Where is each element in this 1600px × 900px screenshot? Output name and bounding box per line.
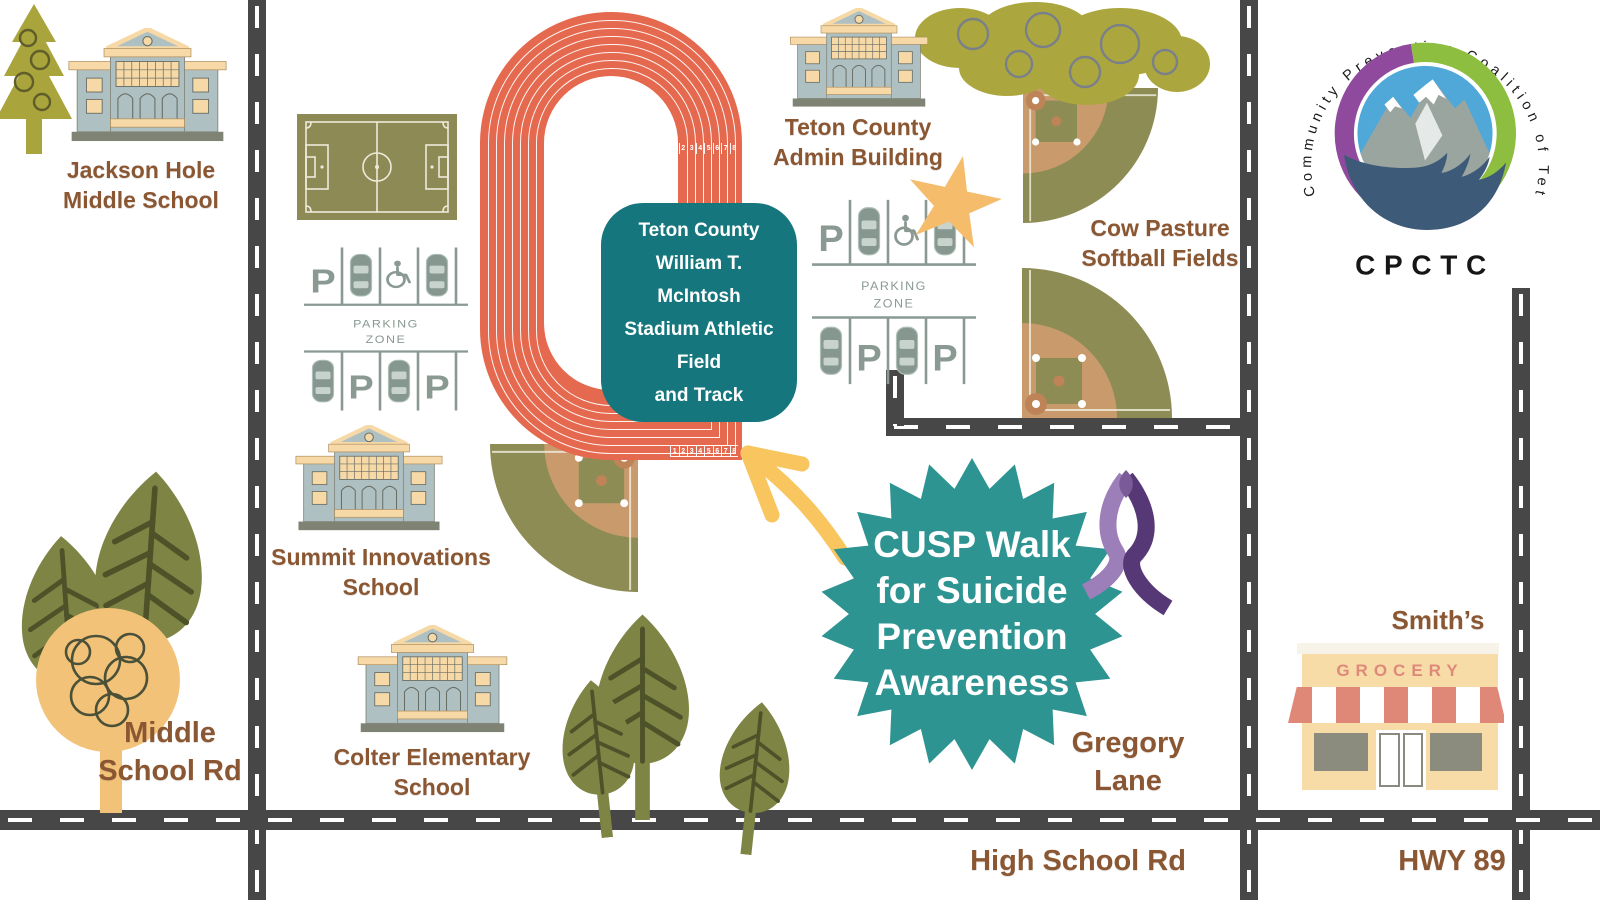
jackson-hole-middle-school-building <box>55 28 240 144</box>
car-icon <box>389 360 410 402</box>
awareness-ribbon-icon <box>1068 468 1193 618</box>
svg-text:P: P <box>424 369 449 406</box>
road-gregory-lane <box>1240 0 1258 900</box>
svg-text:P: P <box>310 263 335 300</box>
colter-elementary-label: Colter ElementarySchool <box>334 742 531 802</box>
road-high-school-rd <box>0 810 1600 830</box>
car-icon <box>897 327 918 374</box>
bush-cluster <box>915 0 1210 115</box>
grocery-doors <box>1376 730 1426 790</box>
soccer-field <box>297 114 457 220</box>
admin-building-label: Teton CountyAdmin Building <box>773 112 943 172</box>
grocery-sign: GROCERY <box>1302 654 1498 687</box>
road-hwy-89 <box>1512 288 1530 900</box>
road-stadium-access <box>886 418 1258 436</box>
stadium-label-box: Teton CountyWilliam T.McIntosh Stadium A… <box>601 203 797 422</box>
high-school-rd-label: High School Rd <box>970 842 1186 880</box>
grocery-valance <box>1297 643 1499 654</box>
cow-pasture-label: Cow PastureSoftball Fields <box>1081 213 1238 273</box>
softball-field-south <box>1022 268 1172 418</box>
svg-text:P: P <box>818 217 843 259</box>
svg-text:CPCTC: CPCTC <box>1355 249 1495 280</box>
softball-field-stadium <box>490 444 638 592</box>
leaf-tree <box>537 673 661 843</box>
summit-innovations-building <box>283 425 455 533</box>
wheelchair-icon <box>388 261 410 287</box>
track-lane-numbers-top: 1234 5678 <box>670 143 738 154</box>
event-map: 1234 5678 1234 5678 <box>0 0 1600 900</box>
car-icon <box>427 254 448 296</box>
grocery-awning <box>1288 687 1506 723</box>
gregory-lane-label: GregoryLane <box>1072 724 1185 800</box>
car-icon <box>859 208 880 255</box>
jackson-hole-label: Jackson HoleMiddle School <box>63 155 219 215</box>
svg-text:PARKING: PARKING <box>353 318 419 330</box>
smiths-label: Smith’s <box>1392 605 1485 636</box>
colter-elementary-building <box>345 625 520 735</box>
grocery-window <box>1314 733 1368 771</box>
svg-text:P: P <box>856 337 881 379</box>
leaf-tree <box>697 695 811 859</box>
svg-text:P: P <box>348 369 373 406</box>
car-icon <box>351 254 372 296</box>
parking-zone-west: P PARKING ZONE P P <box>302 244 470 414</box>
svg-text:P: P <box>932 337 957 379</box>
svg-text:ZONE: ZONE <box>366 334 407 346</box>
cpctc-logo: Community Prevention Coalition of Teton … <box>1280 8 1570 284</box>
middle-school-rd-label: MiddleSchool Rd <box>98 714 241 790</box>
car-icon <box>313 360 334 402</box>
svg-text:PARKING: PARKING <box>861 279 927 293</box>
admin-building <box>778 8 940 109</box>
road-middle-school-rd <box>248 0 266 900</box>
hwy-89-label: HWY 89 <box>1398 842 1505 880</box>
svg-text:ZONE: ZONE <box>874 297 915 311</box>
grocery-window <box>1430 733 1482 771</box>
summit-innovations-label: Summit InnovationsSchool <box>271 542 491 602</box>
car-icon <box>821 327 842 374</box>
